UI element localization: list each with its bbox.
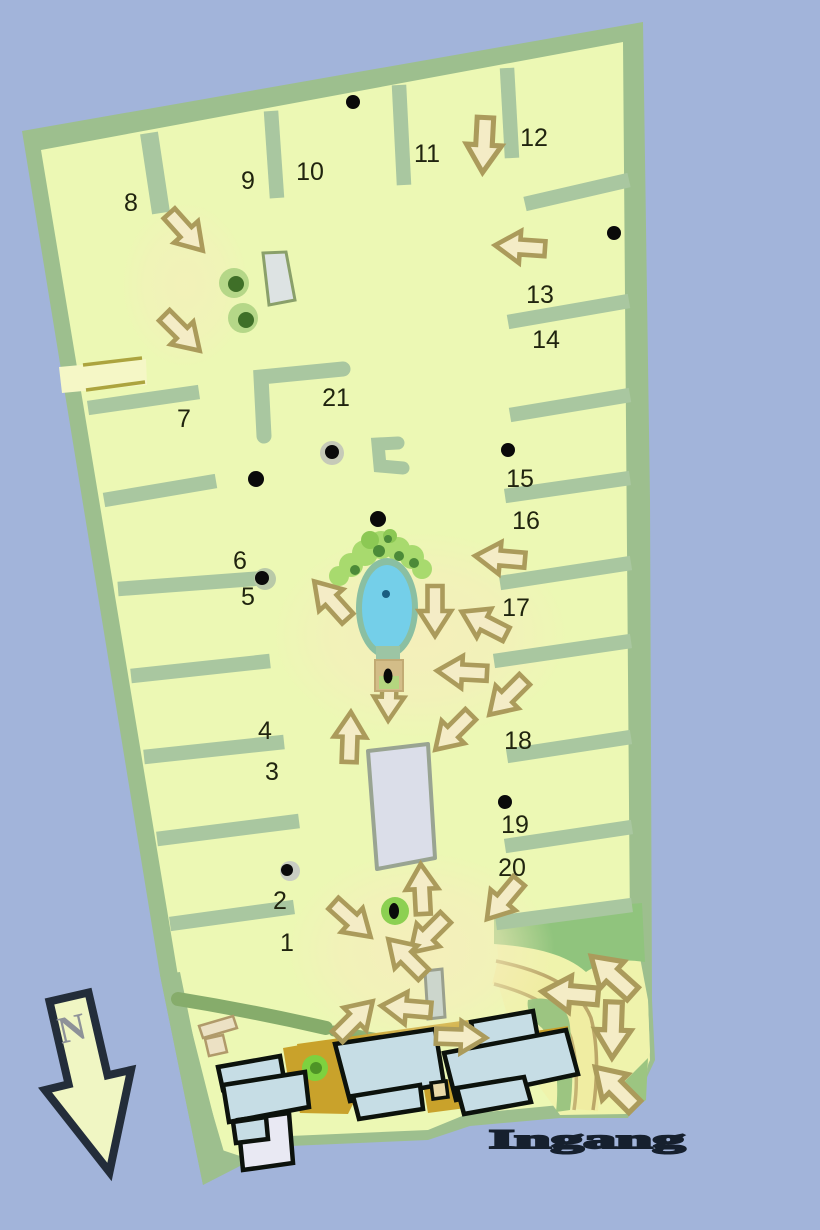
svg-text:12: 12 bbox=[520, 124, 548, 152]
svg-text:6: 6 bbox=[233, 547, 247, 575]
svg-text:15: 15 bbox=[506, 465, 534, 493]
svg-text:9: 9 bbox=[241, 167, 255, 195]
svg-text:2: 2 bbox=[273, 887, 287, 915]
svg-text:21: 21 bbox=[322, 384, 350, 412]
svg-text:18: 18 bbox=[504, 727, 532, 755]
svg-text:20: 20 bbox=[498, 854, 526, 882]
svg-text:3: 3 bbox=[265, 758, 279, 786]
svg-text:5: 5 bbox=[241, 583, 255, 611]
svg-text:4: 4 bbox=[258, 717, 272, 745]
svg-text:10: 10 bbox=[296, 158, 324, 186]
svg-text:19: 19 bbox=[501, 811, 529, 839]
svg-text:1: 1 bbox=[280, 929, 294, 957]
svg-text:13: 13 bbox=[526, 281, 554, 309]
svg-text:17: 17 bbox=[502, 594, 530, 622]
svg-text:14: 14 bbox=[532, 326, 560, 354]
svg-text:Ingang: Ingang bbox=[489, 1125, 685, 1154]
svg-text:11: 11 bbox=[414, 140, 440, 168]
svg-text:7: 7 bbox=[177, 405, 191, 433]
svg-text:16: 16 bbox=[512, 507, 540, 535]
svg-text:8: 8 bbox=[124, 189, 138, 217]
